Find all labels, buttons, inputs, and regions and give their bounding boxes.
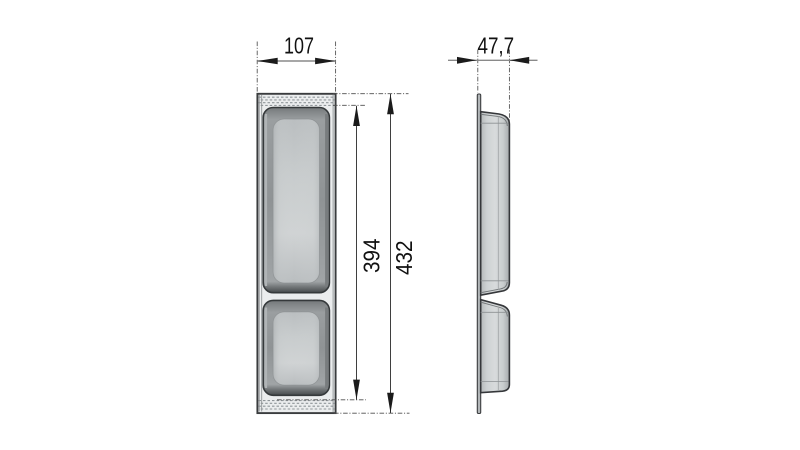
svg-text:432: 432: [391, 240, 417, 275]
svg-text:107: 107: [284, 33, 314, 59]
svg-text:394: 394: [358, 238, 384, 273]
svg-text:47,7: 47,7: [477, 34, 514, 59]
